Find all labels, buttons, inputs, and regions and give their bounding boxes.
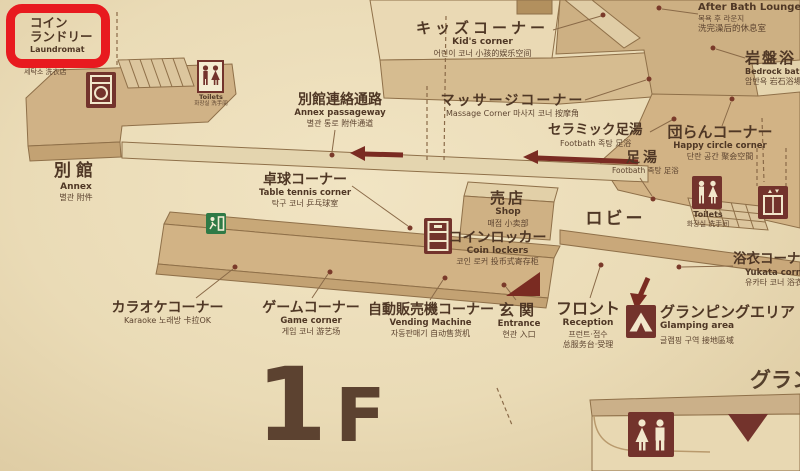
reception-en: Reception	[552, 318, 624, 329]
restroom-bottom-icon	[628, 412, 674, 461]
kids-corner-sub: 어린이 코너 小孩的娱乐空间	[395, 49, 570, 59]
table-tennis-sub: 탁구 코너 乒乓球室	[250, 199, 360, 209]
vending-sub: 자동판매기 自动售货机	[368, 329, 493, 339]
table-tennis-jp: 卓球コーナー	[250, 172, 360, 188]
label-coin-laundry-sub: 세탁소 洗衣店	[24, 68, 94, 77]
reception-zh: 总服务台·受理	[552, 340, 624, 350]
toilets-right-icon	[692, 176, 722, 213]
label-table-tennis-corner: 卓球コーナー Table tennis corner 탁구 코너 乒乓球室	[250, 172, 360, 209]
table-tennis-en: Table tennis corner	[250, 188, 360, 199]
emergency-exit-icon	[206, 213, 226, 238]
glamping-sub: 글램핑 구역 接地區域	[660, 333, 800, 346]
shop-en: Shop	[472, 207, 544, 218]
karaoke-sub: Karaoke 노래방 卡拉OK	[100, 316, 235, 326]
annex-passageway-sub: 별관 통로 附件通道	[285, 119, 395, 129]
glamping-jp: グランピングエリア	[660, 304, 800, 321]
game-corner-en: Game corner	[252, 316, 370, 327]
lobby-jp: ロビー	[578, 210, 653, 230]
toilets-upper-left-sub: 화장실 洗手间	[190, 101, 232, 108]
footbath-jp: 足湯	[612, 150, 692, 166]
toilets-upper-left-en: Toilets	[190, 93, 232, 101]
label-kids-corner: キッズコーナー Kid's corner 어린이 코너 小孩的娱乐空间	[395, 20, 570, 59]
bedrock-bath-jp: 岩盤浴	[745, 50, 800, 67]
coin-lockers-en: Coin lockers	[435, 246, 560, 257]
label-footbath: 足湯 Footbath 족탕 足浴	[612, 150, 692, 175]
glamping-en: Glamping area	[660, 321, 800, 332]
entrance-en: Entrance	[495, 319, 543, 330]
entrance-sub: 현관 入口	[495, 330, 543, 340]
yukata-corner-jp: 浴衣コーナー	[733, 252, 800, 268]
toilets-upper-left-icon	[197, 60, 224, 97]
label-vending-machine-corner: 自動販売機コーナー Vending Machine 자동판매기 自动售货机	[368, 302, 493, 339]
yukata-corner-en: Yukata corner	[733, 268, 800, 279]
floor-indicator: 1 F	[256, 368, 386, 443]
label-ceramic-footbath: セラミック足湯 Footbath 족탕 足浴	[548, 123, 658, 149]
karaoke-jp: カラオケコーナー	[100, 300, 235, 316]
label-bedrock-bath: 岩盤浴 Bedrock bath 암반욕 岩石浴場	[745, 50, 800, 87]
label-after-bath-lounge: 湯上がりラウンジ After Bath Lounge 목욕 후 라운지 洗完澡后…	[698, 0, 800, 34]
vending-jp: 自動販売機コーナー	[368, 302, 493, 318]
partial-glamping-text: グラン	[750, 364, 800, 394]
glamping-tent-icon	[626, 305, 656, 342]
annex-passageway-en: Annex passageway	[285, 108, 395, 119]
annex-en: Annex	[40, 182, 112, 193]
label-toilets-upper-left: Toilets 화장실 洗手间	[190, 93, 232, 108]
label-reception: フロント Reception 프런트·접수 总服务台·受理	[552, 300, 624, 350]
coin-lockers-sub: 코인 로커 投币式寄存柜	[435, 257, 560, 267]
label-glamping-area: グランピングエリア Glamping area 글램핑 구역 接地區域	[660, 304, 800, 346]
label-yukata-corner: 浴衣コーナー Yukata corner 유카타 코너 浴衣角	[733, 252, 800, 288]
elevator-icon	[758, 186, 788, 223]
label-entrance: 玄関 Entrance 현관 入口	[495, 302, 543, 340]
after-bath-lounge-kr: 목욕 후 라운지	[698, 14, 800, 23]
reception-jp: フロント	[552, 300, 624, 318]
entrance-jp: 玄関	[495, 302, 543, 319]
label-annex: 別館 Annex 별관 附件	[40, 162, 112, 203]
label-massage-corner: マッサージコーナー Massage Corner 마사지 코너 按摩角	[430, 93, 595, 119]
bedrock-bath-en: Bedrock bath	[745, 67, 800, 77]
label-karaoke-corner: カラオケコーナー Karaoke 노래방 卡拉OK	[100, 300, 235, 326]
label-lobby: ロビー	[578, 210, 653, 230]
highlight-rectangle	[6, 4, 110, 68]
bedrock-bath-sub: 암반욕 岩石浴場	[745, 77, 800, 87]
coin-laundry-sub: 세탁소 洗衣店	[24, 68, 94, 77]
label-shop: 売店 Shop 매점 小卖部	[472, 190, 544, 229]
game-corner-jp: ゲームコーナー	[252, 300, 370, 316]
shop-jp: 売店	[472, 190, 544, 207]
vending-en: Vending Machine	[368, 318, 493, 329]
floor-plan-graphic	[0, 0, 800, 471]
after-bath-lounge-zh: 洗完澡后的休息室	[698, 24, 800, 35]
label-toilets-right: Toilets 화장실 洗手间	[678, 210, 738, 229]
massage-corner-sub: Massage Corner 마사지 코너 按摩角	[430, 109, 595, 119]
floor-map-photo: キッズコーナー Kid's corner 어린이 코너 小孩的娱乐空间 湯上がり…	[0, 0, 800, 471]
kids-corner-jp: キッズコーナー	[395, 20, 570, 37]
label-coin-lockers: コインロッカー Coin lockers 코인 로커 投币式寄存柜	[435, 230, 560, 267]
reception-kr: 프런트·접수	[552, 330, 624, 340]
coin-lockers-jp: コインロッカー	[435, 230, 560, 246]
label-game-corner: ゲームコーナー Game corner 게임 코너 游艺场	[252, 300, 370, 337]
ceramic-footbath-jp: セラミック足湯	[548, 123, 658, 139]
yukata-corner-sub: 유카타 코너 浴衣角	[733, 278, 800, 288]
massage-corner-jp: マッサージコーナー	[430, 93, 595, 109]
after-bath-lounge-en: After Bath Lounge	[698, 2, 800, 15]
shop-sub: 매점 小卖部	[472, 219, 544, 229]
toilets-right-en: Toilets	[678, 210, 738, 220]
game-corner-sub: 게임 코너 游艺场	[252, 327, 370, 337]
annex-jp: 別館	[40, 162, 112, 182]
footbath-sub: Footbath 족탕 足浴	[612, 166, 692, 175]
happy-circle-jp: 団らんコーナー	[655, 124, 785, 141]
label-annex-passageway: 別館連絡通路 Annex passageway 별관 통로 附件通道	[285, 92, 395, 129]
floor-number: 1	[256, 368, 327, 443]
kids-corner-en: Kid's corner	[395, 37, 570, 48]
annex-sub: 별관 附件	[40, 193, 112, 203]
floor-letter: F	[335, 390, 386, 443]
toilets-right-sub: 화장실 洗手间	[678, 220, 738, 229]
stairs-top-left-icon	[118, 58, 194, 88]
ceramic-footbath-sub: Footbath 족탕 足浴	[548, 139, 658, 149]
washing-machine-icon	[86, 72, 116, 112]
annex-passageway-jp: 別館連絡通路	[285, 92, 395, 108]
